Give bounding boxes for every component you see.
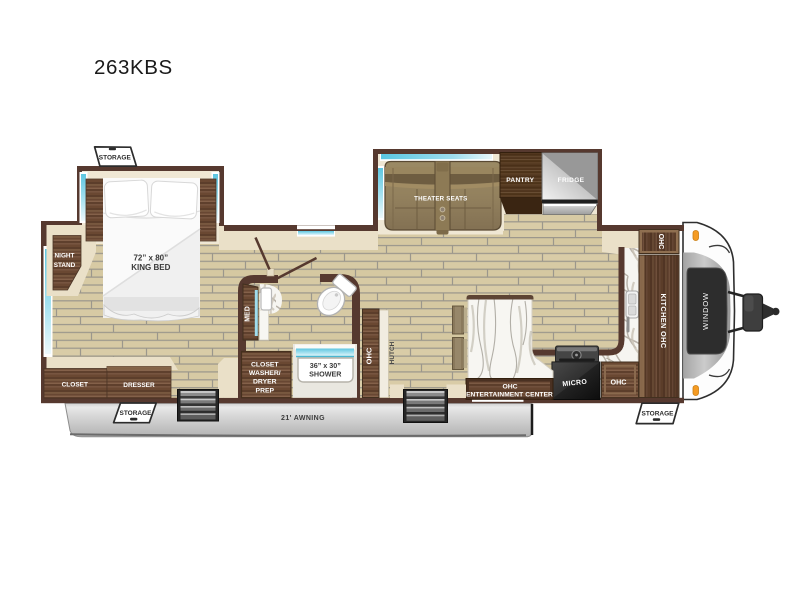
svg-text:36” x 30”: 36” x 30” [310, 361, 342, 370]
svg-text:PANTRY: PANTRY [506, 177, 534, 184]
svg-text:STORAGE: STORAGE [99, 154, 132, 161]
svg-text:OHC: OHC [365, 347, 374, 364]
svg-text:OHC: OHC [657, 234, 664, 250]
svg-text:MED: MED [245, 306, 252, 322]
svg-text:NIGHT: NIGHT [55, 253, 75, 260]
svg-text:CLOSET: CLOSET [251, 362, 279, 369]
svg-text:263KBS: 263KBS [94, 56, 173, 79]
svg-text:72” x 80”: 72” x 80” [133, 254, 168, 263]
svg-text:OHC: OHC [611, 378, 627, 387]
svg-text:21' AWNING: 21' AWNING [281, 415, 325, 422]
svg-text:CLOSET: CLOSET [62, 381, 88, 388]
svg-text:WINDOW: WINDOW [701, 292, 710, 330]
svg-text:HUTCH: HUTCH [389, 341, 396, 364]
svg-text:SHOWER: SHOWER [309, 370, 342, 379]
svg-text:DRESSER: DRESSER [123, 382, 155, 389]
svg-text:STORAGE: STORAGE [119, 410, 152, 417]
svg-text:PREP: PREP [256, 387, 275, 394]
svg-text:STAND: STAND [54, 262, 76, 269]
svg-text:OHC: OHC [502, 383, 517, 390]
svg-text:ENTERTAINMENT CENTER: ENTERTAINMENT CENTER [466, 391, 553, 398]
svg-text:WASHER/: WASHER/ [249, 370, 281, 377]
svg-text:FRIDGE: FRIDGE [558, 177, 585, 184]
svg-text:KING BED: KING BED [131, 263, 170, 272]
svg-text:DRYER: DRYER [253, 379, 277, 386]
svg-text:STORAGE: STORAGE [641, 411, 674, 418]
svg-text:KITCHEN OHC: KITCHEN OHC [659, 293, 668, 348]
svg-text:THEATER SEATS: THEATER SEATS [414, 195, 467, 202]
